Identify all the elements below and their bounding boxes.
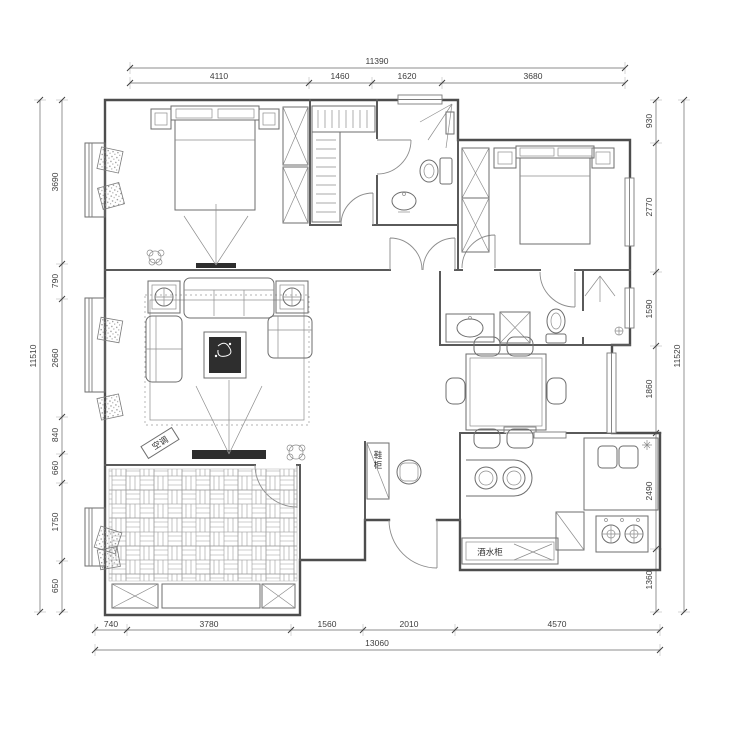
air-conditioner-icon: 空调 xyxy=(141,428,179,459)
floor-drain-icon xyxy=(615,327,623,335)
stove-icon xyxy=(596,516,648,552)
dim-right-seg-3: 1860 xyxy=(644,379,654,398)
air-conditioner-label: 空调 xyxy=(150,434,170,452)
dimension-left: 11510 3690 790 2660 840 660 1750 650 xyxy=(28,97,68,615)
dim-right-seg-0: 930 xyxy=(644,114,654,128)
toilet-icon xyxy=(420,158,452,184)
dim-top-total: 11390 xyxy=(365,56,388,66)
kitchen-sink-icon xyxy=(598,440,652,468)
floor-plan-page: 11390 4110 1460 1620 3680 740 3780 1560 … xyxy=(0,0,740,740)
dim-right-total: 11520 xyxy=(672,344,682,367)
plant-pot-icon xyxy=(97,547,120,570)
wardrobe-icon xyxy=(283,107,308,223)
dim-bottom-total: 13060 xyxy=(365,638,389,648)
bar-stool-icon xyxy=(475,467,525,489)
bathroom1-door-arc xyxy=(377,140,411,174)
balcony xyxy=(109,469,297,608)
coffee-table-icon xyxy=(204,332,246,378)
sink-icon xyxy=(392,192,416,212)
dim-top-seg-3: 3680 xyxy=(524,71,543,81)
master-bedroom xyxy=(147,106,308,268)
wine-cabinet-label: 酒水柜 xyxy=(477,547,503,558)
dim-bottom-segments-line xyxy=(92,624,663,636)
dim-left-seg-5: 1750 xyxy=(50,512,60,531)
plant-pot-icon xyxy=(97,317,122,342)
fridge-icon xyxy=(556,512,584,550)
shower-spray-icon xyxy=(585,276,615,302)
planter-icon xyxy=(162,584,260,608)
plant-pot-icon xyxy=(97,147,123,173)
dim-left-seg-4: 660 xyxy=(50,461,60,475)
dim-top-seg-0: 4110 xyxy=(210,71,229,81)
dining-window xyxy=(607,353,616,433)
shower-spray-icon xyxy=(420,104,452,148)
dim-right-seg-5: 1360 xyxy=(644,570,654,589)
plant-pot-icon xyxy=(97,394,123,420)
dim-right-seg-4: 2490 xyxy=(644,481,654,500)
dimension-top: 11390 4110 1460 1620 3680 xyxy=(127,56,628,89)
shower-window xyxy=(625,288,634,328)
entrance-door-arc xyxy=(389,520,437,568)
bathroom-2 xyxy=(446,309,566,343)
tv-icon xyxy=(184,204,248,268)
dim-left-seg-3: 840 xyxy=(50,428,60,442)
floor-plan-svg: 11390 4110 1460 1620 3680 740 3780 1560 … xyxy=(0,0,740,740)
dim-left-seg-0: 3690 xyxy=(50,172,60,191)
dim-bottom-seg-3: 2010 xyxy=(400,619,419,629)
dim-top-segments-line xyxy=(127,77,628,89)
entry: 鞋柜 xyxy=(367,443,421,499)
hall-double-door-arc xyxy=(390,238,455,270)
plant-icon xyxy=(147,250,164,265)
living-room: 空调 xyxy=(141,278,312,460)
shoe-cabinet-label: 鞋柜 xyxy=(374,450,383,471)
dim-bottom-seg-4: 4570 xyxy=(548,619,567,629)
stool-icon xyxy=(397,460,421,484)
dim-top-seg-2: 1620 xyxy=(398,71,417,81)
dim-bottom-seg-1: 3780 xyxy=(200,619,219,629)
dim-bottom-seg-0: 740 xyxy=(104,619,118,629)
bedroom2-window xyxy=(625,178,634,246)
hanger-rack-icon xyxy=(312,106,375,222)
kitchen: 酒水柜 xyxy=(462,438,658,564)
shower-panel-icon xyxy=(446,112,454,134)
walk-in-closet xyxy=(312,106,375,222)
corridor-window xyxy=(398,95,442,104)
bathroom2-door-arc xyxy=(540,272,575,307)
shower-room xyxy=(585,276,623,335)
dim-right-seg-2: 1590 xyxy=(644,299,654,318)
bed-icon xyxy=(171,106,259,210)
plant-icon xyxy=(287,445,305,460)
tile-floor xyxy=(109,469,297,581)
dimension-right: 930 2770 1590 1860 2490 1360 11520 xyxy=(644,97,690,615)
tv-cabinet-icon xyxy=(192,380,266,459)
dim-left-seg-6: 650 xyxy=(50,579,60,593)
dim-bottom-seg-2: 1560 xyxy=(318,619,337,629)
bar-counter-icon xyxy=(466,460,532,496)
closet-door-arc xyxy=(341,193,373,225)
vanity-sink-icon xyxy=(446,314,494,342)
wine-cabinet-icon: 酒水柜 xyxy=(462,538,558,564)
washing-machine-icon xyxy=(500,312,530,343)
dining-table-icon xyxy=(466,354,546,430)
planter-box-icon xyxy=(112,584,295,608)
dim-right-seg-1: 2770 xyxy=(644,197,654,216)
nightstand-icon xyxy=(151,109,279,129)
bay-window-top xyxy=(85,143,124,217)
bed-icon xyxy=(516,146,594,244)
plant-pot-icon xyxy=(98,183,125,210)
dim-left-seg-1: 790 xyxy=(50,274,60,288)
dimension-bottom: 740 3780 1560 2010 4570 13060 xyxy=(92,619,663,656)
dim-left-seg-2: 2660 xyxy=(50,348,60,367)
shoe-cabinet-icon: 鞋柜 xyxy=(367,443,389,499)
dim-left-total: 11510 xyxy=(28,344,38,367)
side-table-lamp-icon xyxy=(148,281,308,313)
dim-top-seg-1: 1460 xyxy=(331,71,350,81)
toilet-icon xyxy=(546,309,566,343)
bathroom-1 xyxy=(392,104,454,212)
